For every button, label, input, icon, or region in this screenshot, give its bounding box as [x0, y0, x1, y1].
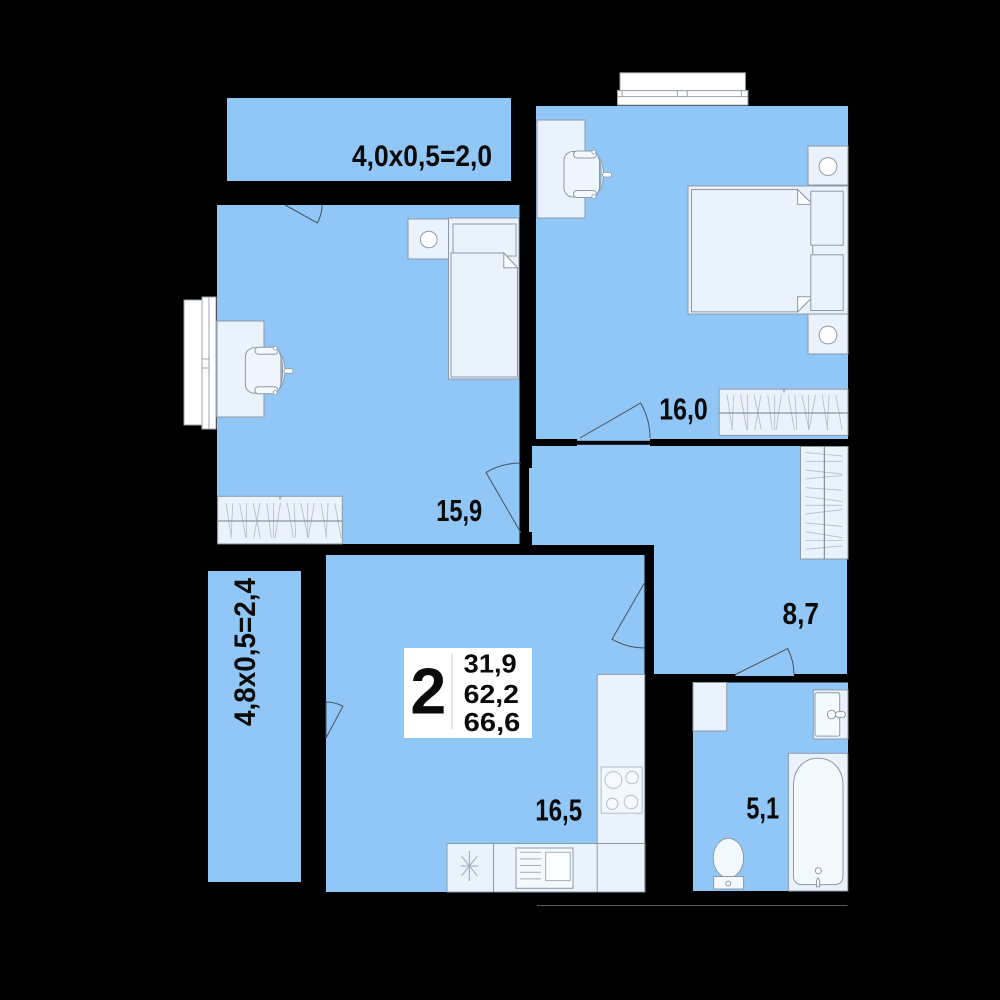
svg-text:4,0x0,5=2,0: 4,0x0,5=2,0 — [352, 140, 492, 173]
svg-text:16,0: 16,0 — [659, 391, 708, 426]
svg-text:62,2: 62,2 — [464, 679, 519, 709]
svg-text:5,1: 5,1 — [746, 791, 779, 826]
svg-text:4,8x0,5=2,4: 4,8x0,5=2,4 — [229, 578, 262, 726]
svg-text:31,9: 31,9 — [464, 649, 517, 679]
svg-text:16,5: 16,5 — [535, 793, 582, 828]
svg-text:2: 2 — [410, 655, 446, 727]
svg-text:8,7: 8,7 — [783, 596, 820, 631]
svg-text:66,6: 66,6 — [464, 707, 521, 737]
svg-text:15,9: 15,9 — [436, 493, 482, 528]
